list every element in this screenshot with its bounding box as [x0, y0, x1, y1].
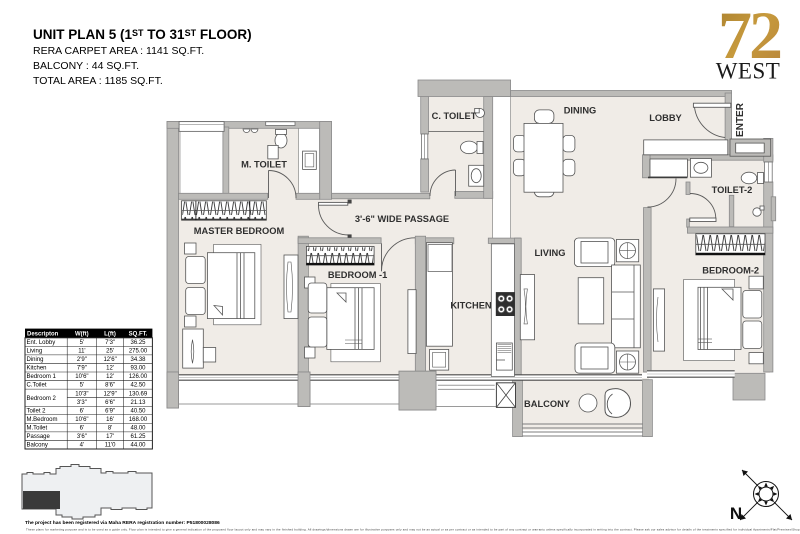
svg-text:M.Bedroom: M.Bedroom [27, 417, 58, 423]
svg-text:48.00: 48.00 [130, 426, 146, 432]
svg-text:7'3": 7'3" [105, 340, 115, 346]
svg-text:12': 12' [106, 374, 114, 380]
svg-text:Bedroom 1: Bedroom 1 [27, 374, 57, 380]
svg-text:WEST: WEST [716, 59, 781, 84]
svg-text:12'6": 12'6" [103, 357, 116, 363]
svg-text:8': 8' [108, 426, 112, 432]
svg-text:3'-6" WIDE PASSAGE: 3'-6" WIDE PASSAGE [355, 214, 449, 224]
svg-text:TOILET-2: TOILET-2 [712, 185, 753, 195]
svg-text:3'6": 3'6" [77, 434, 87, 440]
svg-text:61.25: 61.25 [130, 434, 146, 440]
svg-text:2'9": 2'9" [77, 357, 87, 363]
svg-text:Toilet 2: Toilet 2 [27, 408, 47, 414]
svg-text:12': 12' [106, 366, 114, 372]
svg-text:5': 5' [80, 340, 84, 346]
svg-text:SQ.FT.: SQ.FT. [129, 331, 148, 337]
svg-text:4': 4' [80, 443, 84, 449]
svg-text:Dining: Dining [27, 357, 44, 363]
svg-text:M. TOILET: M. TOILET [241, 160, 287, 170]
svg-text:Balcony: Balcony [27, 443, 48, 449]
svg-text:LOBBY: LOBBY [649, 113, 682, 123]
svg-text:130.69: 130.69 [129, 391, 148, 397]
svg-text:C.Toilet: C.Toilet [27, 383, 47, 389]
svg-text:93.00: 93.00 [130, 366, 146, 372]
svg-text:10'3": 10'3" [75, 391, 88, 397]
svg-text:42.50: 42.50 [130, 383, 146, 389]
svg-text:M.Toilet: M.Toilet [27, 426, 48, 432]
svg-text:KITCHEN: KITCHEN [450, 301, 492, 311]
svg-text:L(ft): L(ft) [104, 331, 116, 337]
svg-text:6': 6' [80, 426, 84, 432]
svg-text:44.00: 44.00 [130, 443, 146, 449]
svg-text:ENTER: ENTER [735, 102, 746, 137]
svg-text:10'6": 10'6" [75, 417, 88, 423]
svg-text:BEDROOM -1: BEDROOM -1 [328, 270, 387, 280]
svg-text:36.25: 36.25 [130, 340, 146, 346]
svg-text:BALCONY: BALCONY [524, 399, 571, 409]
svg-text:RERA CARPET AREA : 1141 SQ.FT.: RERA CARPET AREA : 1141 SQ.FT. [33, 45, 204, 57]
svg-text:Living: Living [27, 349, 43, 355]
svg-text:Descripton: Descripton [27, 331, 59, 337]
svg-text:6'6": 6'6" [105, 400, 115, 406]
svg-text:16': 16' [106, 417, 114, 423]
svg-text:Ent. Lobby: Ent. Lobby [27, 340, 56, 346]
svg-text:MASTER BEDROOM: MASTER BEDROOM [194, 226, 285, 236]
svg-text:34.38: 34.38 [130, 357, 146, 363]
svg-text:11'0: 11'0 [105, 443, 116, 449]
svg-text:5': 5' [80, 383, 84, 389]
svg-text:7'9": 7'9" [77, 366, 87, 372]
svg-text:Passage: Passage [27, 434, 51, 440]
svg-text:25': 25' [106, 349, 114, 355]
svg-text:TOTAL AREA : 1185 SQ.FT.: TOTAL AREA : 1185 SQ.FT. [33, 75, 163, 87]
svg-text:The project has been registere: The project has been registered via Maha… [25, 520, 220, 526]
svg-text:N: N [730, 504, 742, 523]
svg-text:DINING: DINING [564, 106, 597, 116]
svg-text:BEDROOM-2: BEDROOM-2 [702, 266, 759, 276]
svg-text:6'9": 6'9" [105, 408, 115, 414]
svg-text:40.50: 40.50 [130, 408, 146, 414]
svg-text:275.00: 275.00 [129, 349, 148, 355]
svg-text:21.13: 21.13 [130, 400, 146, 406]
svg-text:12'9": 12'9" [103, 391, 116, 397]
svg-text:11': 11' [78, 349, 85, 355]
svg-text:These plans for marketing purp: These plans for marketing purpose and is… [26, 528, 800, 532]
svg-text:168.00: 168.00 [129, 417, 148, 423]
svg-text:W(ft): W(ft) [75, 331, 89, 337]
svg-text:UNIT PLAN 5 (1ST TO 31ST FLOOR: UNIT PLAN 5 (1ST TO 31ST FLOOR) [33, 27, 252, 42]
svg-text:Bedroom 2: Bedroom 2 [27, 396, 57, 402]
svg-text:3'3": 3'3" [77, 400, 87, 406]
svg-text:LIVING: LIVING [535, 248, 566, 258]
svg-text:10'6": 10'6" [75, 374, 88, 380]
svg-text:Kitchen: Kitchen [27, 366, 47, 372]
svg-text:17': 17' [106, 434, 114, 440]
svg-text:6': 6' [80, 408, 84, 414]
svg-text:126.00: 126.00 [129, 374, 148, 380]
svg-text:BALCONY : 44 SQ.FT.: BALCONY : 44 SQ.FT. [33, 60, 139, 72]
svg-text:C. TOILET: C. TOILET [432, 111, 477, 121]
svg-text:8'6": 8'6" [105, 383, 115, 389]
